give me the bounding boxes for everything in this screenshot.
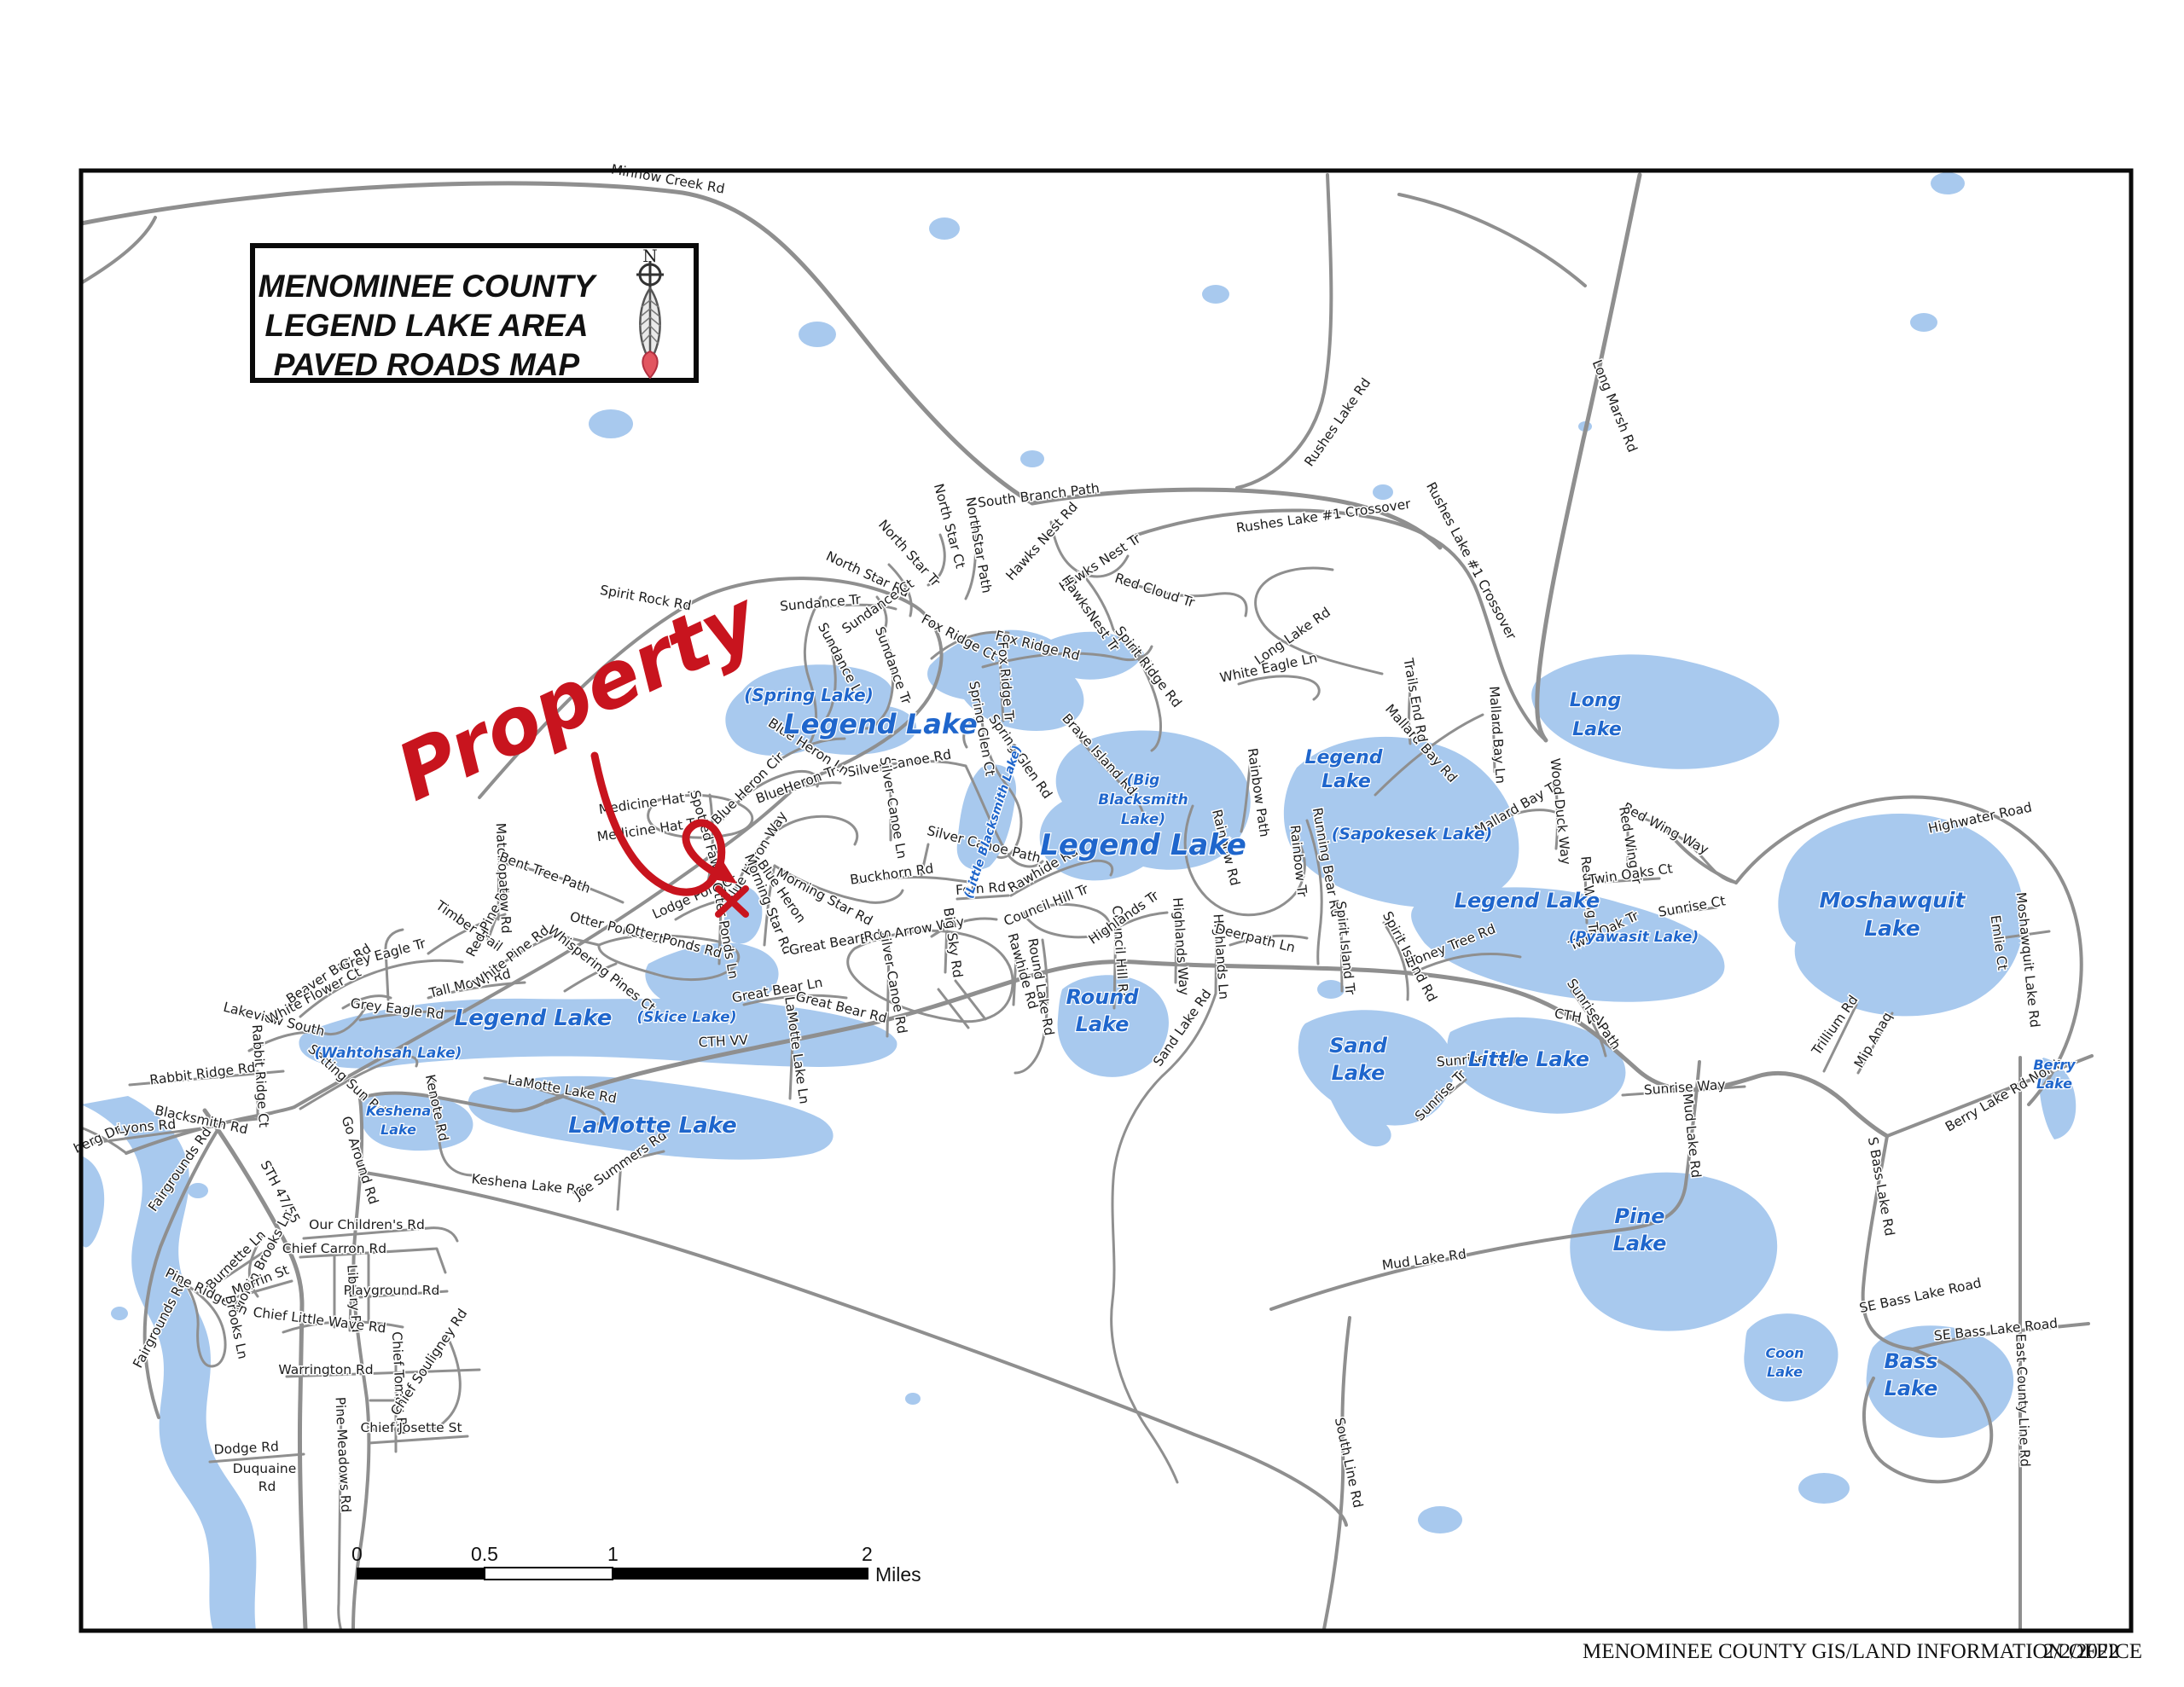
road-label-grey-eagle-tr-111: Grey Eagle Tr — [339, 936, 428, 973]
scale-tick-2: 2 — [862, 1543, 873, 1565]
lake-label-moshawquit-14: Moshawquit — [1820, 888, 1966, 913]
road-label-rabbit-ridge-rd-106: Rabbit Ridge Rd — [148, 1060, 256, 1088]
scale-unit-label: Miles — [875, 1563, 921, 1586]
paved-roads-map: Minnow Creek RdLong Marsh RdRushes Lake … — [0, 0, 2184, 1687]
pond-12 — [1621, 983, 1636, 995]
road-label-cth-vv-60: CTH VV — [698, 1032, 748, 1050]
lake-label-lake-25: Lake — [380, 1122, 416, 1138]
lake-label-lake-13: Lake — [1572, 719, 1622, 740]
lake-label-legend-lake-1: Legend Lake — [783, 708, 977, 740]
lake-label-legend-7: Legend — [1304, 747, 1382, 768]
pond-6 — [1910, 313, 1937, 332]
pond-3 — [1931, 172, 1965, 194]
lake-label-berry-16: Berry — [2033, 1057, 2076, 1073]
road-label-keshena-lake-rd-100: Keshena Lake Rd — [471, 1171, 584, 1198]
road-label-sundance-tr-14: Sundance Tr — [779, 592, 862, 614]
road-label-pine-meadows-rd-144: Pine Meadows Rd — [332, 1397, 353, 1513]
lake-label-lake-15: Lake — [1864, 916, 1920, 941]
pond-17 — [111, 1307, 128, 1320]
lake-label-lake-21: Lake — [1332, 1061, 1385, 1085]
road-label-highlands-way-57: Highlands Way — [1170, 897, 1192, 996]
road-label-mallard-bay-ln-72: Mallard Bay Ln — [1486, 686, 1508, 785]
lake-label-blacksmith-4: Blacksmith — [1098, 791, 1188, 809]
lake-label-lake-17: Lake — [2036, 1075, 2072, 1092]
road-label-silver-canoe-ln-28: Silver Canoe Ln — [877, 756, 910, 860]
scale-segment-3 — [613, 1568, 868, 1580]
lake-label-wahtohsah-lake-26: (Wahtohsah Lake) — [315, 1045, 462, 1062]
pond-8 — [799, 322, 836, 347]
pond-4 — [1373, 484, 1393, 500]
lake-wetland-left-edge — [81, 1156, 104, 1247]
road-label-dodge-rd-141: Dodge Rd — [213, 1439, 279, 1458]
road-label-se-bass-lake-road-96: SE Bass Lake Road — [1858, 1275, 1983, 1316]
pond-16 — [188, 1183, 208, 1198]
lake-label-bass-33: Bass — [1884, 1349, 1937, 1373]
property-annotation-text: Property — [384, 572, 774, 819]
title-line-1: MENOMINEE COUNTY — [258, 269, 598, 304]
road-label-rabbit-ridge-ct-107: Rabbit Ridge Ct — [249, 1024, 271, 1128]
lake-label-coon-31: Coon — [1765, 1345, 1804, 1361]
pond-10 — [589, 409, 633, 438]
title-line-2: LEGEND LAKE AREA — [265, 308, 589, 343]
road-label-warrington-rd-137: Warrington Rd — [278, 1362, 373, 1377]
lake-label-lake-32: Lake — [1767, 1364, 1803, 1380]
lake-label-keshena-24: Keshena — [366, 1103, 431, 1119]
road-label-sunrise-ct-83: Sunrise Ct — [1657, 893, 1727, 920]
lake-label-sand-20: Sand — [1329, 1034, 1388, 1058]
title-box: MENOMINEE COUNTY LEGEND LAKE AREA PAVED … — [253, 246, 696, 382]
lake-long-lake — [1531, 654, 1779, 768]
footer-date: 2/2/2022 — [2043, 1640, 2119, 1663]
road-label-chief-josette-st-140: Chief Josette St — [360, 1420, 462, 1435]
road-keshena-lake-rd — [360, 1172, 1346, 1525]
road-label-northstar-path-7: NorthStar Path — [962, 496, 995, 594]
road-label-chief-little-wave-rd-136: Chief Little Wave Rd — [253, 1305, 387, 1336]
lake-label-lake-5: Lake) — [1121, 811, 1165, 828]
lake-label-spring-lake-0: (Spring Lake) — [744, 685, 874, 705]
footer: MENOMINEE COUNTY GIS/LAND INFORMATION OF… — [1583, 1640, 2142, 1663]
road-label-rd-143: Rd — [258, 1479, 276, 1494]
road-top-right-fork — [1399, 194, 1585, 286]
road-chief-josette-st — [369, 1436, 468, 1443]
lake-label-big-3: (Big — [1127, 772, 1160, 789]
road-white-eagle-ln — [1239, 676, 1319, 699]
road-top-left-edge-road — [81, 217, 155, 283]
pond-14 — [1418, 1506, 1462, 1533]
road-label-south-line-rd-99: South Line Rd — [1332, 1416, 1366, 1509]
lake-label-legend-lake-10: Legend Lake — [1455, 889, 1600, 913]
lake-label-lake-30: Lake — [1613, 1232, 1667, 1255]
road-label-red-cloud-tr-13: Red Cloud Tr — [1113, 571, 1198, 611]
scale-bar: 0 0.5 1 2 Miles — [351, 1543, 921, 1586]
scale-segment-2 — [485, 1568, 613, 1580]
road-label-s-bass-lake-rd-95: S Bass Lake Rd — [1865, 1136, 1897, 1238]
road-label-moshawquit-lake-rd-91: Moshawquit Lake Rd — [2013, 891, 2043, 1029]
map-page: Minnow Creek RdLong Marsh RdRushes Lake … — [0, 0, 2184, 1687]
scale-tick-0: 0 — [351, 1543, 363, 1565]
lake-label-lake-34: Lake — [1885, 1377, 1938, 1400]
road-label-chief-carron-rd-128: Chief Carron Rd — [282, 1241, 386, 1256]
road-label-hawks-nest-rd-10: Hawks Nest Rd — [1003, 499, 1081, 583]
pond-5 — [1020, 450, 1044, 467]
pond-15 — [905, 1393, 921, 1405]
road-label-mud-lake-rd-94: Mud Lake Rd — [1680, 1093, 1704, 1179]
road-label-east-county-line-rd-98: East County Line Rd — [2013, 1333, 2032, 1467]
road-label-north-star-ct-6: North Star Ct — [931, 482, 968, 570]
pond-2 — [1202, 285, 1229, 304]
road-go-around-rd — [353, 1093, 546, 1629]
pond-1 — [929, 217, 960, 240]
road-label-great-bear-rd-46: Great Bear Rd — [788, 927, 883, 959]
lake-label-legend-lake-2: Legend Lake — [1040, 828, 1246, 862]
road-label-duquaine-142: Duquaine — [233, 1461, 297, 1476]
road-label-south-branch-path-5: South Branch Path — [977, 480, 1101, 510]
road-rabbit-ridge-ct — [224, 1071, 258, 1122]
scale-tick-05: 0.5 — [471, 1543, 498, 1565]
lake-label-lamotte-lake-23: LaMotte Lake — [568, 1113, 737, 1139]
road-label-rushes-lake-1-crossover-4: Rushes Lake #1 Crossover — [1423, 479, 1519, 642]
lake-label-skice-lake-28: (Skice Lake) — [637, 1009, 737, 1026]
pond-11 — [1317, 980, 1345, 999]
title-line-3: PAVED ROADS MAP — [274, 347, 580, 382]
scale-segment-1 — [357, 1568, 485, 1580]
scale-tick-1: 1 — [607, 1543, 619, 1565]
lake-label-sapokesek-lake-9: (Sapokesek Lake) — [1332, 825, 1493, 843]
road-label-mud-lake-rd-93: Mud Lake Rd — [1381, 1246, 1467, 1273]
lake-label-pine-29: Pine — [1614, 1204, 1664, 1228]
lake-label-lake-19: Lake — [1076, 1012, 1130, 1036]
road-label-se-bass-lake-road-97: SE Bass Lake Road — [1933, 1315, 2059, 1343]
lake-label-long-12: Long — [1570, 690, 1622, 711]
lake-label-pyawasit-lake-11: (Pyawasit Lake) — [1569, 929, 1699, 946]
lake-label-little-lake-22: Little Lake — [1468, 1047, 1589, 1071]
lake-pine-lake — [1570, 1173, 1777, 1331]
road-label-our-children-s-rd-127: Our Children's Rd — [309, 1217, 425, 1232]
pond-13 — [1798, 1473, 1850, 1504]
lake-moshawquit-lake — [1778, 814, 2024, 1016]
lakes-layer — [81, 172, 2076, 1631]
road-label-buckhorn-rd-43: Buckhorn Rd — [849, 861, 934, 888]
road-label-playground-rd-135: Playground Rd — [344, 1283, 440, 1298]
lake-label-legend-lake-27: Legend Lake — [455, 1006, 613, 1031]
road-label-long-marsh-rd-1: Long Marsh Rd — [1589, 357, 1641, 454]
road-label-rushes-lake-rd-2: Rushes Lake Rd — [1302, 375, 1374, 469]
road-rushes-lake-1-crossover — [1135, 510, 1546, 740]
lake-label-lake-8: Lake — [1321, 771, 1371, 792]
lake-label-round-18: Round — [1066, 985, 1139, 1009]
road-label-mip-anaq-88: Mip Anaq — [1851, 1010, 1896, 1071]
